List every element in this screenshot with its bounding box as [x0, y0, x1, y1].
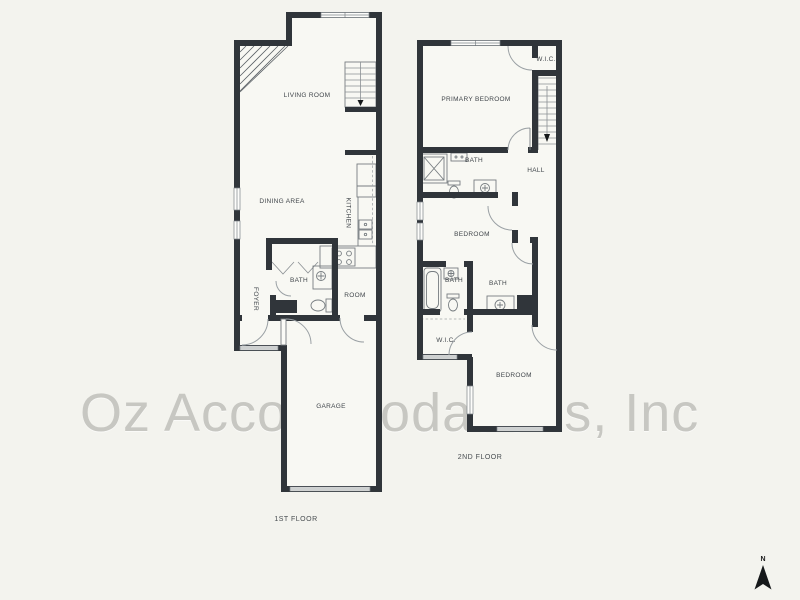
garage-door: [290, 487, 370, 491]
page-background: Oz Accommodations, Inc: [0, 0, 800, 600]
room-label-foyer: FOYER: [252, 287, 259, 311]
room-label-living-room: LIVING ROOM: [284, 92, 331, 99]
compass: N: [755, 556, 772, 590]
floorplan-svg: LIVING ROOM DINING AREA KITCHEN BATH ROO…: [0, 0, 800, 600]
room-label-bedroom-middle: BEDROOM: [454, 231, 490, 238]
room-label-wic-lower: W.I.C.: [436, 337, 456, 344]
north-label: N: [760, 556, 765, 563]
room-label-wic-upper: W.I.C.: [536, 56, 556, 63]
floor1-interior: [234, 12, 382, 492]
floor2-label: 2ND FLOOR: [458, 454, 503, 461]
room-label-garage: GARAGE: [316, 403, 346, 410]
chase-block: [517, 295, 532, 309]
room-label-dining-area: DINING AREA: [259, 198, 305, 205]
room-label-bath-left: BATH: [445, 277, 463, 284]
room-label-kitchen: KITCHEN: [345, 198, 352, 229]
floor1-plan: LIVING ROOM DINING AREA KITCHEN BATH ROO…: [234, 12, 382, 523]
room-label-bath-right: BATH: [489, 280, 507, 287]
floor1-label: 1ST FLOOR: [274, 516, 317, 523]
room-label-room: ROOM: [344, 292, 365, 299]
room-label-primary-bedroom: PRIMARY BEDROOM: [441, 96, 510, 103]
floor2-plan: PRIMARY BEDROOM W.I.C. BATH HALL BEDROOM…: [417, 40, 562, 461]
room-label-primary-bath: BATH: [465, 157, 483, 164]
room-label-bedroom-lower: BEDROOM: [496, 372, 532, 379]
door-leaf: [281, 319, 286, 345]
north-arrow-icon: [755, 565, 772, 590]
room-label-bath: BATH: [290, 277, 308, 284]
room-label-hall: HALL: [527, 167, 545, 174]
